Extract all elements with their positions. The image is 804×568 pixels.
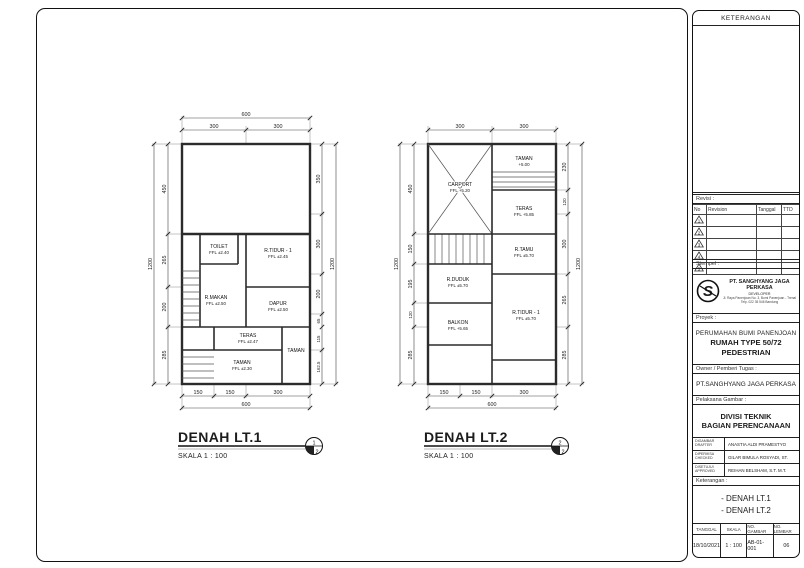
revision-triangle-icon: 2 — [694, 227, 704, 236]
room-ffl: FFL ±2.30 — [232, 366, 252, 371]
company-block: S PT. SANGHYANG JAGA PERKASA DEVELOPER J… — [693, 268, 799, 313]
dim-text: 300 — [456, 124, 465, 130]
dim-text: 200 — [162, 303, 168, 312]
sheet-title-1: - DENAH LT.1 — [721, 493, 771, 505]
dim-text: 285 — [162, 351, 168, 360]
project-line-1: PERUMAHAN BUMI PANENJOAN — [696, 330, 797, 337]
floor-plan-lt2: 300 300 1200 450 150 195 120 285 230 120… — [388, 100, 594, 462]
owner-label: Owner / Pemberi Tugas : — [693, 364, 799, 373]
dim-text: 162.5 — [316, 361, 321, 373]
dim-text: 120 — [562, 198, 567, 206]
company-name: PT. SANGHYANG JAGA PERKASA — [723, 279, 796, 291]
sheet-number-value: 06 — [774, 535, 799, 557]
room-ffl: FFL ±2.47 — [238, 339, 258, 344]
dim-text: 1200 — [394, 258, 400, 270]
date-value: 18/10/2021 — [693, 535, 720, 557]
dim-text: 265 — [562, 296, 568, 305]
dim-text: 230 — [562, 163, 568, 172]
plan2-scale: SKALA 1 : 100 — [424, 453, 473, 460]
dim-text: 120 — [408, 311, 413, 319]
ref-number-top: 2 — [558, 441, 561, 447]
revision-triangle-icon: 3 — [694, 239, 704, 248]
floor-plan-lt1: 600 300 300 1200 450 265 200 285 350 300… — [142, 100, 348, 462]
project-line-3: PEDESTRIAN — [722, 348, 771, 357]
plan1-title: DENAH LT.1 — [178, 429, 262, 445]
dim-text: 1200 — [330, 258, 336, 270]
owner-name-box: PT.SANGHYANG JAGA PERKASA — [693, 373, 799, 395]
room-ffl: FFL ±2.50 — [268, 307, 288, 312]
footer-no-lembar: NO. LEMBAR 06 — [773, 524, 799, 557]
dim-text: 150 — [226, 390, 235, 396]
dim-text: 450 — [162, 185, 168, 194]
room-ffl: FFL ±5.70 — [516, 316, 536, 321]
stempel-label: Stempel : — [693, 259, 799, 268]
dim-text: 265 — [162, 256, 168, 265]
drafter-name: ANASTIA ALDI PRAMESTYO — [725, 438, 799, 450]
dim-text: 285 — [562, 351, 568, 360]
dim-text: 300 — [210, 124, 219, 130]
approver-name: REIHAN BELSHAM, S.T. M.T. — [725, 464, 799, 476]
checker-name: GILAR BIMULA ROSYADI, ST. — [725, 451, 799, 463]
keterangan-header: KETERANGAN — [693, 11, 799, 25]
divisi-line-1: DIVISI TEKNIK — [721, 412, 772, 421]
dim-text: 350 — [316, 175, 322, 184]
proyek-label: Proyek : — [693, 313, 799, 322]
sheet-title-2: - DENAH LT.2 — [721, 505, 771, 517]
room-ffl: FFL +5.20 — [450, 188, 471, 193]
dim-text: 285 — [408, 351, 414, 360]
dim-text: 300 — [562, 240, 568, 249]
scale-value: 1 : 100 — [721, 535, 746, 557]
ref-number-bottom: 2 — [315, 450, 318, 456]
dim-text: 300 — [316, 240, 322, 249]
sheet-titles: - DENAH LT.1 - DENAH LT.2 — [693, 485, 799, 523]
revisi-label: Revisi : — [693, 192, 799, 203]
title-ref-bubble: 2 2 — [552, 438, 569, 456]
footer-no-gambar: NO. GAMBAR AB-01-001 — [746, 524, 772, 557]
title-block: KETERANGAN Revisi : No Revision Tanggal … — [692, 10, 800, 558]
rev-col-revision: Revision — [707, 205, 757, 215]
ref-number-bottom: 2 — [561, 450, 564, 456]
room-ffl: FFL ±5.70 — [448, 283, 468, 288]
rev-row: 2 — [693, 227, 799, 239]
revision-table: No Revision Tanggal TTD 1 2 3 4 5 — [693, 203, 799, 259]
owner-name: PT.SANGHYANG JAGA PERKASA — [696, 381, 796, 388]
dim-text: 300 — [274, 124, 283, 130]
room-ffl: FFL ±2.45 — [268, 254, 288, 259]
dim-text: 195 — [408, 280, 414, 289]
room-ffl: FFL ±2.40 — [209, 250, 229, 255]
walls-lt2 — [428, 144, 556, 384]
footer-skala: SKALA 1 : 100 — [720, 524, 746, 557]
room-ffl: +5.00 — [518, 162, 530, 167]
judul-label: Keterangan : — [693, 476, 799, 485]
room-ffl: FFL +5.65 — [448, 326, 469, 331]
project-title: PERUMAHAN BUMI PANENJOAN RUMAH TYPE 50/7… — [693, 322, 799, 364]
dim-text: 65 — [316, 318, 321, 323]
dim-text: 600 — [488, 402, 497, 408]
divisi-line-2: BAGIAN PERENCANAAN — [702, 421, 791, 430]
dim-text: 600 — [242, 402, 251, 408]
room-ffl: FFL +5.85 — [514, 212, 535, 217]
room-ffl: FFL ±2.50 — [206, 301, 226, 306]
company-phone: Telp. 022 35 546 Bandung — [723, 300, 796, 304]
sign-row-diperiksa: DIPERIKSACHECKED GILAR BIMULA ROSYADI, S… — [693, 450, 799, 463]
dim-text: 1200 — [576, 258, 582, 270]
dim-text: 115 — [316, 335, 321, 343]
dim-text: 600 — [242, 112, 251, 118]
rev-col-ttd: TTD — [782, 205, 800, 215]
rev-col-no: No — [693, 205, 707, 215]
title-ref-bubble: 1 2 — [306, 438, 323, 456]
dim-text: 150 — [440, 390, 449, 396]
plan1-scale: SKALA 1 : 100 — [178, 453, 227, 460]
sign-row-disetujui: DISETUJUIAPPROVED REIHAN BELSHAM, S.T. M… — [693, 463, 799, 476]
dim-text: 1200 — [148, 258, 154, 270]
rev-row: 3 — [693, 239, 799, 251]
footer-tanggal: TANGGAL 18/10/2021 — [693, 524, 720, 557]
revision-triangle-icon: 1 — [694, 215, 704, 224]
drawing-number-value: AB-01-001 — [747, 535, 772, 557]
dim-text: 150 — [472, 390, 481, 396]
dim-text: 300 — [520, 124, 529, 130]
project-line-2: RUMAH TYPE 50/72 — [710, 338, 781, 347]
rev-row: 1 — [693, 215, 799, 227]
dim-text: 300 — [274, 390, 283, 396]
company-logo: S — [696, 279, 720, 303]
ref-number-top: 1 — [312, 441, 315, 447]
divisi-box: DIVISI TEKNIK BAGIAN PERENCANAAN — [693, 404, 799, 437]
company-address: Jl. Raya Panenjoan No. 3, Bumi Panenjoan… — [723, 296, 796, 300]
divisi-label: Pelaksana Gambar : — [693, 395, 799, 404]
plan2-title: DENAH LT.2 — [424, 429, 508, 445]
dim-text: 450 — [408, 185, 414, 194]
keterangan-notes-area — [693, 25, 799, 192]
dim-text: 150 — [408, 245, 414, 254]
dim-text: 150 — [194, 390, 203, 396]
dim-text: 300 — [520, 390, 529, 396]
dim-text: 200 — [316, 290, 322, 299]
rev-col-tanggal: Tanggal — [757, 205, 782, 215]
sign-row-digambar: DIGAMBARDRAFTER ANASTIA ALDI PRAMESTYO — [693, 437, 799, 450]
footer-table: TANGGAL 18/10/2021 SKALA 1 : 100 NO. GAM… — [693, 523, 799, 557]
room-ffl: FFL ±5.70 — [514, 253, 534, 258]
room-label: TAMAN — [287, 348, 305, 354]
